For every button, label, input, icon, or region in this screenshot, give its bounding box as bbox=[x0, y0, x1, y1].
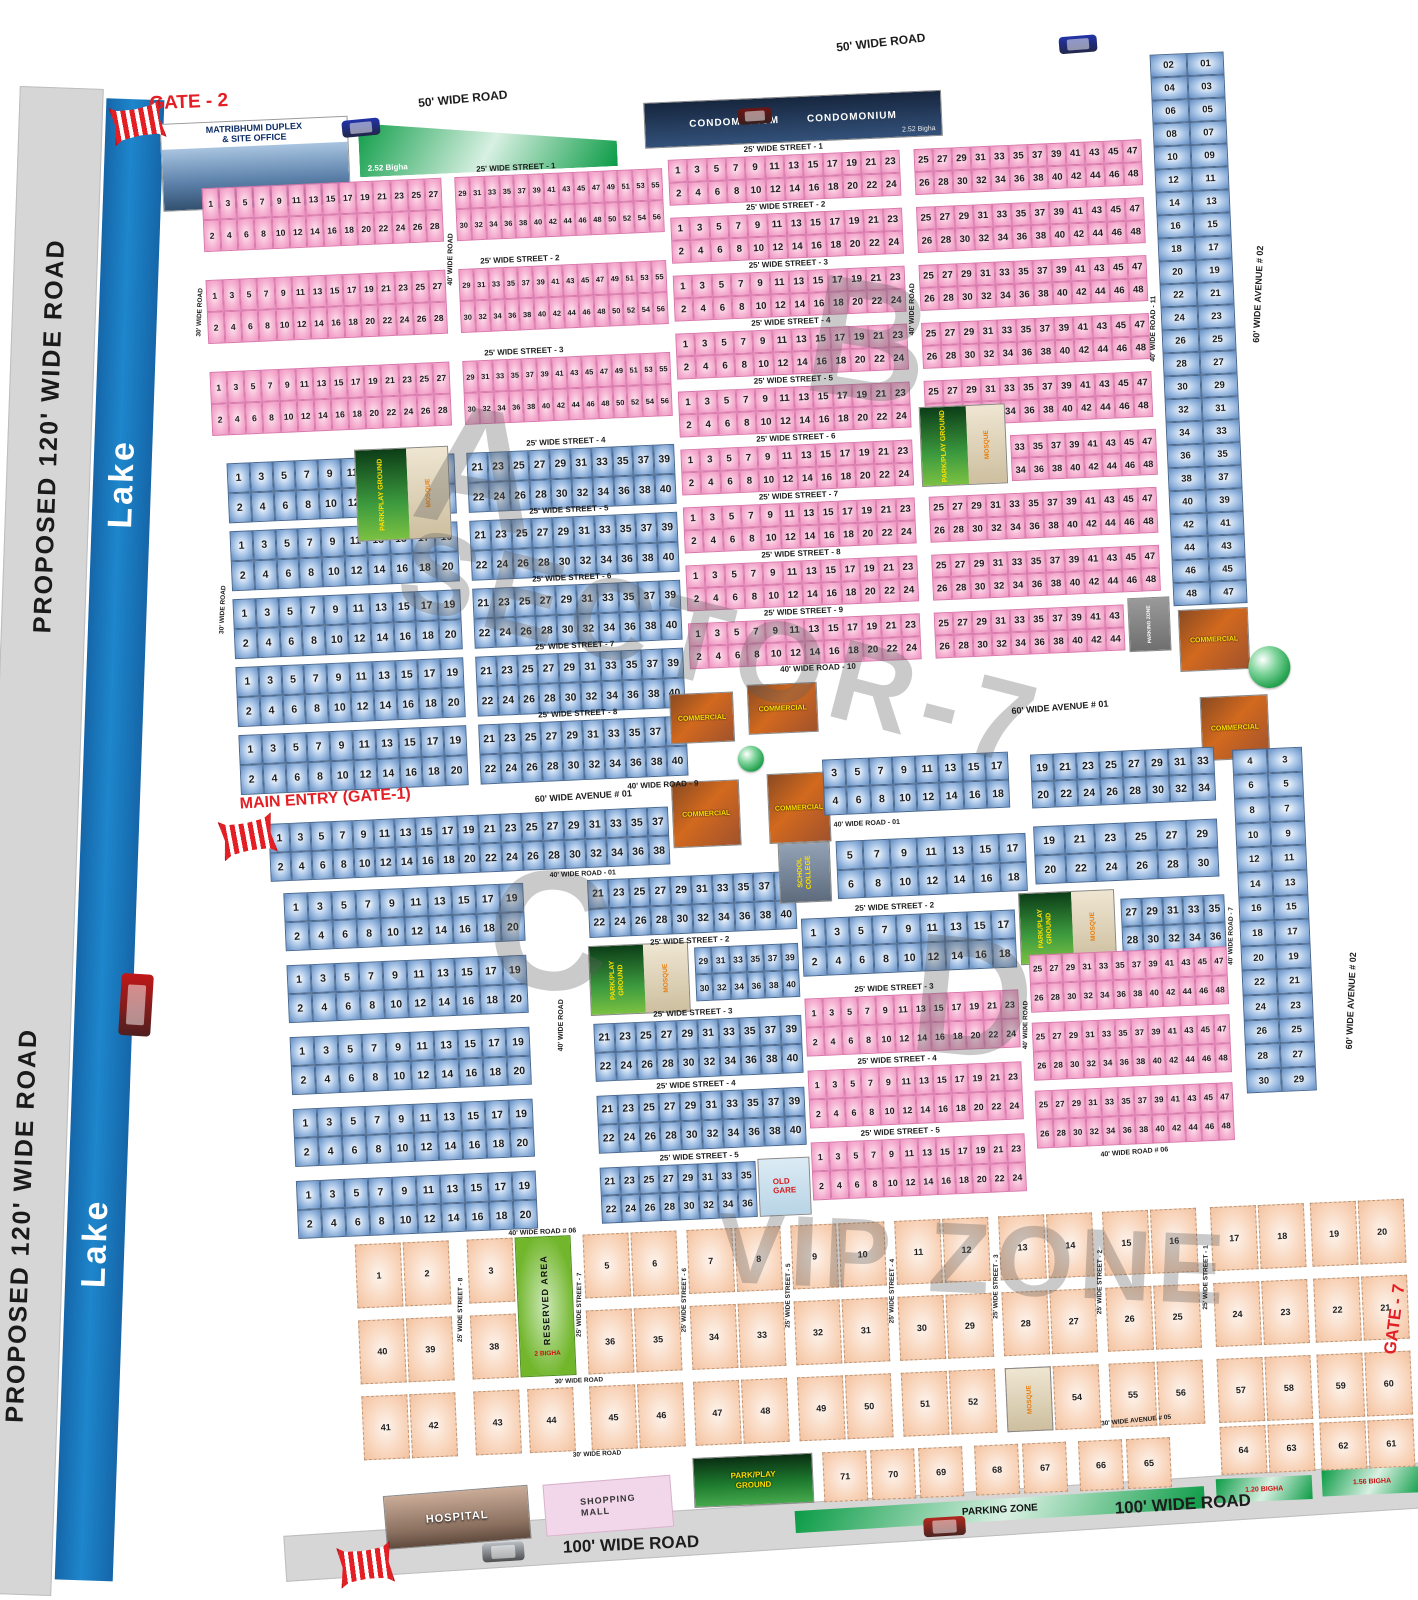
plot: 42 bbox=[553, 388, 569, 421]
plot: 16 bbox=[933, 1093, 952, 1123]
plot: 27 bbox=[540, 721, 562, 752]
plot: 36 bbox=[740, 1046, 762, 1076]
plot: 24 bbox=[1077, 779, 1101, 807]
plot: 9 bbox=[321, 526, 345, 557]
plot: 6 bbox=[345, 1207, 370, 1237]
plot: 31 bbox=[691, 875, 713, 905]
plot: 8 bbox=[254, 217, 273, 250]
plot: 16 bbox=[1238, 896, 1274, 922]
plot: 2 bbox=[237, 696, 261, 727]
plot: 1 bbox=[808, 1070, 827, 1100]
plot: 31 bbox=[970, 146, 990, 170]
plot: 8 bbox=[732, 295, 752, 319]
street-label-vertical: 25' WIDE STREET - 6 bbox=[681, 1268, 689, 1332]
plot: 2 bbox=[203, 219, 222, 252]
plot: 47 bbox=[1213, 1014, 1231, 1044]
plot: 66 bbox=[1078, 1439, 1124, 1491]
plot: 2 bbox=[809, 1099, 828, 1129]
plot: 1 bbox=[673, 275, 693, 299]
plot: 3 bbox=[1267, 747, 1303, 773]
plot: 33 bbox=[1007, 551, 1027, 575]
plot: 10 bbox=[328, 692, 352, 723]
plot: 13 bbox=[944, 835, 972, 865]
road-label-vertical: 40' WIDE ROAD bbox=[1022, 1001, 1029, 1050]
plot: 5 bbox=[846, 1140, 865, 1170]
plot: 28 bbox=[949, 518, 969, 542]
plot: 15 bbox=[451, 885, 476, 915]
plot: 69 bbox=[918, 1446, 964, 1498]
plot-row: 1357911131517192468101214161820 bbox=[296, 1171, 538, 1239]
plot: 2 bbox=[669, 182, 689, 206]
plot: 17 bbox=[338, 181, 357, 214]
plot: 11 bbox=[772, 329, 792, 353]
plot: 10 bbox=[877, 1024, 896, 1054]
plot: 8 bbox=[366, 1134, 391, 1164]
plot: 47 bbox=[1210, 580, 1248, 605]
plot: 41 bbox=[1075, 373, 1095, 397]
plot: 27 bbox=[950, 553, 970, 577]
plot: 4 bbox=[698, 413, 718, 437]
plot: 8 bbox=[739, 469, 759, 493]
plot: 8 bbox=[862, 1096, 881, 1126]
plot: 17 bbox=[840, 558, 860, 582]
plot: 37 bbox=[763, 1088, 785, 1118]
plot: 25 bbox=[629, 877, 651, 907]
plot: 12 bbox=[404, 916, 429, 946]
plot: 12 bbox=[292, 308, 311, 341]
plot: 25 bbox=[929, 496, 949, 520]
commercial-image: COMMERCIAL bbox=[1178, 607, 1251, 672]
plot: 2 bbox=[211, 403, 230, 436]
plot: 7 bbox=[733, 330, 753, 354]
plot: 39 bbox=[1046, 142, 1066, 166]
plot: 5 bbox=[275, 528, 299, 559]
plot: 15 bbox=[329, 366, 348, 399]
plot: 33 bbox=[1183, 895, 1205, 924]
plot: 6 bbox=[1233, 773, 1269, 799]
plot: 48 bbox=[1126, 220, 1146, 244]
plot: 36 bbox=[1112, 980, 1130, 1010]
plot: 36 bbox=[747, 971, 765, 999]
plot: 45 bbox=[589, 1384, 638, 1450]
plot: 35 bbox=[615, 514, 637, 545]
plot: 59 bbox=[1316, 1353, 1365, 1419]
avenue-label-vertical: 60' WIDE AVENUE # 02 bbox=[1251, 245, 1265, 343]
plot: 27 bbox=[1045, 953, 1063, 983]
plot: 14 bbox=[441, 1203, 466, 1233]
plot: 36 bbox=[1030, 631, 1050, 655]
plot: 40 bbox=[1148, 1046, 1166, 1076]
plot: 48 bbox=[1141, 568, 1161, 592]
plot: 3 bbox=[320, 1179, 345, 1209]
plot: 7 bbox=[728, 214, 748, 238]
plot: 38 bbox=[648, 835, 670, 865]
plot: 26 bbox=[408, 210, 427, 243]
plot: 2 bbox=[231, 560, 255, 591]
plot: 29 bbox=[1145, 749, 1169, 777]
plot: 7 bbox=[858, 996, 877, 1026]
plot: 33 bbox=[488, 267, 504, 300]
plot-row: 192123252729202224262830 bbox=[1033, 819, 1219, 885]
plot: 47 bbox=[592, 263, 608, 296]
plot: 18 bbox=[1258, 1203, 1307, 1269]
plot: 37 bbox=[1045, 549, 1065, 573]
plot: 3 bbox=[307, 891, 332, 921]
plot: 8 bbox=[302, 625, 326, 656]
plot: 44 bbox=[1178, 977, 1196, 1007]
site-plan-map: PROPOSED 120' WIDE ROADPROPOSED 120' WID… bbox=[0, 0, 1418, 1600]
plot: 22 bbox=[1054, 780, 1078, 808]
plot: 33 bbox=[603, 718, 625, 749]
page: PROPOSED 120' WIDE ROADPROPOSED 120' WID… bbox=[0, 0, 1418, 1600]
plot: 21 bbox=[1277, 968, 1313, 994]
plot: 3 bbox=[223, 279, 242, 312]
plot: 9 bbox=[760, 503, 780, 527]
plot: 46 bbox=[582, 387, 598, 420]
plot: 47 bbox=[1132, 371, 1152, 395]
plot: 27 bbox=[1280, 1042, 1316, 1068]
plot: 53 bbox=[640, 353, 656, 386]
plot: 26 bbox=[630, 906, 652, 936]
plot: 33 bbox=[1191, 747, 1215, 775]
plot: 7 bbox=[736, 388, 756, 412]
plot: 18 bbox=[836, 465, 856, 489]
plot: 51 bbox=[622, 261, 638, 294]
car-roof bbox=[350, 121, 372, 134]
plot: 29 bbox=[454, 177, 470, 210]
plot: 4 bbox=[291, 851, 313, 881]
plot: 34 bbox=[990, 168, 1010, 192]
plot: 14 bbox=[432, 987, 457, 1017]
plot: 10 bbox=[891, 867, 919, 897]
plot: 18 bbox=[841, 581, 861, 605]
plot: 21 bbox=[377, 272, 396, 305]
plot: 38 bbox=[1135, 1115, 1153, 1145]
plot: 12 bbox=[773, 352, 793, 376]
plot: 17 bbox=[421, 726, 445, 757]
vip-plot-row: 41 bbox=[361, 1394, 410, 1460]
plot: 32 bbox=[692, 904, 714, 934]
plot: 12 bbox=[770, 294, 790, 318]
plot: 13 bbox=[918, 1137, 937, 1167]
plot: 24 bbox=[881, 173, 901, 197]
plot: 31 bbox=[991, 609, 1011, 633]
plot: 19 bbox=[512, 1171, 537, 1201]
plot: 1 bbox=[804, 998, 823, 1028]
plot: 11 bbox=[373, 818, 395, 848]
plot: 9 bbox=[385, 1032, 410, 1062]
plot: 15 bbox=[321, 182, 340, 215]
plot: 38 bbox=[764, 1117, 786, 1147]
plot: 40 bbox=[655, 474, 677, 505]
plot: 2 bbox=[228, 492, 252, 523]
plot: 7 bbox=[307, 731, 331, 762]
plot: 23 bbox=[619, 1166, 640, 1195]
street-label-vertical: 25' WIDE STREET - 2 bbox=[1096, 1250, 1104, 1314]
plot: 22 bbox=[877, 521, 897, 545]
plot: 38 bbox=[1132, 1047, 1150, 1077]
plot: 16 bbox=[452, 914, 477, 944]
plot: 4 bbox=[823, 1026, 842, 1056]
plot: 20 bbox=[365, 397, 384, 430]
caption: COMMERCIAL bbox=[682, 809, 730, 818]
plot: 38 bbox=[470, 1314, 519, 1380]
plot: 2 bbox=[234, 628, 258, 659]
plot-row: 1357911131517192123252724681012141618202… bbox=[205, 270, 448, 344]
plot: 42 bbox=[1076, 396, 1096, 420]
plot: 61 bbox=[1367, 1419, 1415, 1469]
plot: 10 bbox=[1154, 145, 1192, 170]
plot-row: 2123252729313335373922242628303234363840 bbox=[587, 871, 797, 938]
plot: 24 bbox=[500, 753, 522, 784]
plot: 7 bbox=[298, 527, 322, 558]
plot: 2 bbox=[270, 852, 292, 882]
plot: 32 bbox=[1169, 775, 1193, 803]
plot: 1 bbox=[668, 159, 688, 183]
plot: 15 bbox=[395, 659, 419, 690]
plot: 48 bbox=[1214, 1043, 1232, 1073]
plot: 14 bbox=[396, 846, 418, 876]
plot: 15 bbox=[464, 1173, 489, 1203]
plot: 13 bbox=[308, 275, 327, 308]
plot: 6 bbox=[342, 1135, 367, 1165]
plot: 33 bbox=[992, 203, 1012, 227]
plot: 34 bbox=[690, 1304, 739, 1370]
plot: 22 bbox=[476, 686, 498, 717]
plot: 15 bbox=[325, 274, 344, 307]
plot: 37 bbox=[1032, 259, 1052, 283]
plot: 47 bbox=[1210, 946, 1228, 976]
vip-plot-row: 18 bbox=[1258, 1203, 1307, 1269]
plot: 13 bbox=[304, 183, 323, 216]
plot: 31 bbox=[1162, 896, 1184, 925]
plot: 23 bbox=[1198, 304, 1236, 329]
plot: 7 bbox=[301, 595, 325, 626]
plot: 46 bbox=[1112, 337, 1132, 361]
plot: 34 bbox=[722, 1118, 744, 1148]
plot: 29 bbox=[959, 320, 979, 344]
plot: 35 bbox=[1114, 1018, 1132, 1048]
plot: 3 bbox=[702, 506, 722, 530]
plot: 50 bbox=[604, 202, 620, 235]
plot: 7 bbox=[863, 839, 891, 869]
plot: 9 bbox=[755, 387, 775, 411]
plot: 46 bbox=[1172, 559, 1210, 584]
plot: 29 bbox=[954, 205, 974, 229]
plot: 67 bbox=[1022, 1442, 1068, 1494]
plot: 37 bbox=[647, 806, 669, 836]
plot: 3 bbox=[697, 390, 717, 414]
car-icon bbox=[118, 973, 154, 1037]
plot: 6 bbox=[285, 762, 309, 793]
plot: 5 bbox=[272, 460, 296, 491]
plot: 12 bbox=[1236, 847, 1272, 873]
plot: 13 bbox=[440, 1174, 465, 1204]
plot: 24 bbox=[620, 1194, 641, 1223]
plot: 9 bbox=[758, 445, 778, 469]
plot: 26 bbox=[917, 229, 937, 253]
vip-plot-row: 59 bbox=[1316, 1353, 1365, 1419]
plot: 4 bbox=[701, 471, 721, 495]
park-play-ground-mosque-image: PARK/PLAY GROUNDMOSQUE bbox=[919, 403, 1008, 487]
plot: 31 bbox=[986, 493, 1006, 517]
plot: 15 bbox=[935, 1136, 954, 1166]
plot: 23 bbox=[614, 1022, 636, 1052]
plot: 33 bbox=[591, 447, 613, 478]
plot: 25 bbox=[1099, 751, 1123, 779]
plot: 25 bbox=[638, 1093, 660, 1123]
plot: 40 bbox=[666, 746, 688, 777]
green-label: 2.52 Bigha bbox=[368, 162, 408, 173]
plot: 47 bbox=[1137, 487, 1157, 511]
plot: 6 bbox=[848, 1169, 867, 1199]
plot: 10 bbox=[325, 624, 349, 655]
plot: 8 bbox=[296, 489, 320, 520]
plot: 22 bbox=[879, 579, 899, 603]
plot: 21 bbox=[863, 209, 883, 233]
plot: 3 bbox=[825, 917, 850, 947]
plot: 27 bbox=[649, 876, 671, 906]
plot: 14 bbox=[373, 690, 397, 721]
plot-row: 19212325272931332022242628303234 bbox=[1030, 747, 1216, 809]
plot: 11 bbox=[406, 959, 431, 989]
plot: 10 bbox=[748, 237, 768, 261]
plot: 14 bbox=[310, 307, 329, 340]
plot: 6 bbox=[715, 354, 735, 378]
plot: 39 bbox=[532, 265, 548, 298]
road-label-vertical: 40' WIDE ROAD bbox=[558, 999, 565, 1051]
plot: 32 bbox=[474, 300, 490, 333]
plot: 5 bbox=[281, 664, 305, 695]
plot: 4 bbox=[1232, 748, 1268, 774]
plot: 32 bbox=[979, 343, 999, 367]
plot: 17 bbox=[1274, 919, 1310, 945]
plot: 19 bbox=[509, 1099, 534, 1129]
plot: 20 bbox=[972, 1164, 991, 1194]
plot: 8 bbox=[369, 1206, 394, 1236]
plot: 44 bbox=[1088, 222, 1108, 246]
bigha-156-block: 1.56 BIGHA bbox=[1321, 1466, 1418, 1496]
plot: 32 bbox=[974, 227, 994, 251]
plot: 2 bbox=[679, 414, 699, 438]
plot: 40 bbox=[782, 1044, 804, 1074]
plot: 4 bbox=[312, 992, 337, 1022]
plot: 29 bbox=[458, 268, 474, 301]
plot: 41 bbox=[1080, 489, 1100, 513]
plot: 31 bbox=[584, 809, 606, 839]
plot: 17 bbox=[953, 1136, 972, 1166]
plot: 20 bbox=[459, 844, 481, 874]
plot: 33 bbox=[484, 175, 500, 208]
plot: 18 bbox=[951, 1093, 970, 1123]
plot: 40 bbox=[1151, 1114, 1169, 1144]
plot: 46 bbox=[1107, 221, 1127, 245]
vip-plot-row: 43 bbox=[473, 1389, 522, 1455]
plot: 39 bbox=[1049, 200, 1069, 224]
plot: 5 bbox=[843, 1068, 862, 1098]
plot: 18 bbox=[422, 756, 446, 787]
plot: 44 bbox=[1085, 164, 1105, 188]
plot: 17 bbox=[835, 442, 855, 466]
plot: 7 bbox=[1269, 796, 1305, 822]
plot: 5 bbox=[719, 447, 739, 471]
plot: 9 bbox=[278, 368, 297, 401]
plot: 34 bbox=[1102, 1116, 1120, 1146]
plot: 11 bbox=[774, 387, 794, 411]
plot: 38 bbox=[761, 1045, 783, 1075]
plot: 35 bbox=[1204, 442, 1242, 467]
vip-plot-row: 68 bbox=[974, 1444, 1020, 1496]
plot: 36 bbox=[1014, 283, 1034, 307]
plot: 20 bbox=[1031, 781, 1055, 809]
plot: 25 bbox=[411, 270, 430, 303]
plot: 42 bbox=[545, 205, 561, 238]
park-play-ground-part: PARK/PLAY GROUND bbox=[355, 449, 409, 541]
mosque-part: MOSQUE bbox=[966, 404, 1007, 484]
plot: 12 bbox=[768, 236, 788, 260]
plot: 54 bbox=[634, 201, 650, 234]
plot: 32 bbox=[976, 285, 996, 309]
plot: 17 bbox=[342, 273, 361, 306]
plot: 39 bbox=[1206, 488, 1244, 513]
plot: 18 bbox=[340, 213, 359, 246]
road-label: PROPOSED 120' WIDE ROAD bbox=[1, 1027, 44, 1423]
plot-row: 1357911131517192468101214161820 bbox=[238, 725, 468, 795]
plot: 25 bbox=[1279, 1017, 1315, 1043]
plot: 40 bbox=[785, 1116, 807, 1146]
plot: 43 bbox=[1084, 141, 1104, 165]
plot: 27 bbox=[953, 611, 973, 635]
plot: 4 bbox=[259, 695, 283, 726]
plot: 4 bbox=[224, 311, 243, 344]
plot: 34 bbox=[1008, 574, 1028, 598]
plot: 49 bbox=[611, 354, 627, 387]
plot: 55 bbox=[655, 352, 671, 385]
plot: 31 bbox=[1084, 1088, 1102, 1118]
plot: 5 bbox=[338, 1034, 363, 1064]
plot: 27 bbox=[1120, 898, 1142, 927]
plot: 16 bbox=[331, 398, 350, 431]
plot: 10 bbox=[384, 989, 409, 1019]
plot: 6 bbox=[630, 1230, 679, 1296]
plot: 24 bbox=[899, 578, 919, 602]
plot: 14 bbox=[939, 782, 963, 811]
plot: 15 bbox=[1194, 212, 1232, 237]
plot: 33 bbox=[1101, 1087, 1119, 1117]
plot: 54 bbox=[1053, 1364, 1102, 1430]
plot: 3 bbox=[700, 448, 720, 472]
plot: 43 bbox=[1180, 1016, 1198, 1046]
plot: 4 bbox=[220, 219, 239, 252]
plot: 32 bbox=[713, 973, 731, 1001]
plot: 6 bbox=[273, 490, 297, 521]
plot: 22 bbox=[1160, 283, 1198, 308]
plot: 7 bbox=[253, 185, 272, 218]
plot: 15 bbox=[398, 727, 422, 758]
plot: 8 bbox=[737, 411, 757, 435]
plot: 48 bbox=[1128, 278, 1148, 302]
plot: 3 bbox=[289, 822, 311, 852]
plot: 5 bbox=[341, 1106, 366, 1136]
road-label: PROPOSED 120' WIDE ROAD bbox=[28, 238, 71, 634]
plot: 42 bbox=[549, 297, 565, 330]
plot: 10 bbox=[751, 294, 771, 318]
plot: 35 bbox=[626, 807, 648, 837]
plot: 37 bbox=[760, 1016, 782, 1046]
plot: 2 bbox=[671, 240, 691, 264]
plot: 18 bbox=[954, 1165, 973, 1195]
plot: 29 bbox=[1281, 1066, 1317, 1092]
